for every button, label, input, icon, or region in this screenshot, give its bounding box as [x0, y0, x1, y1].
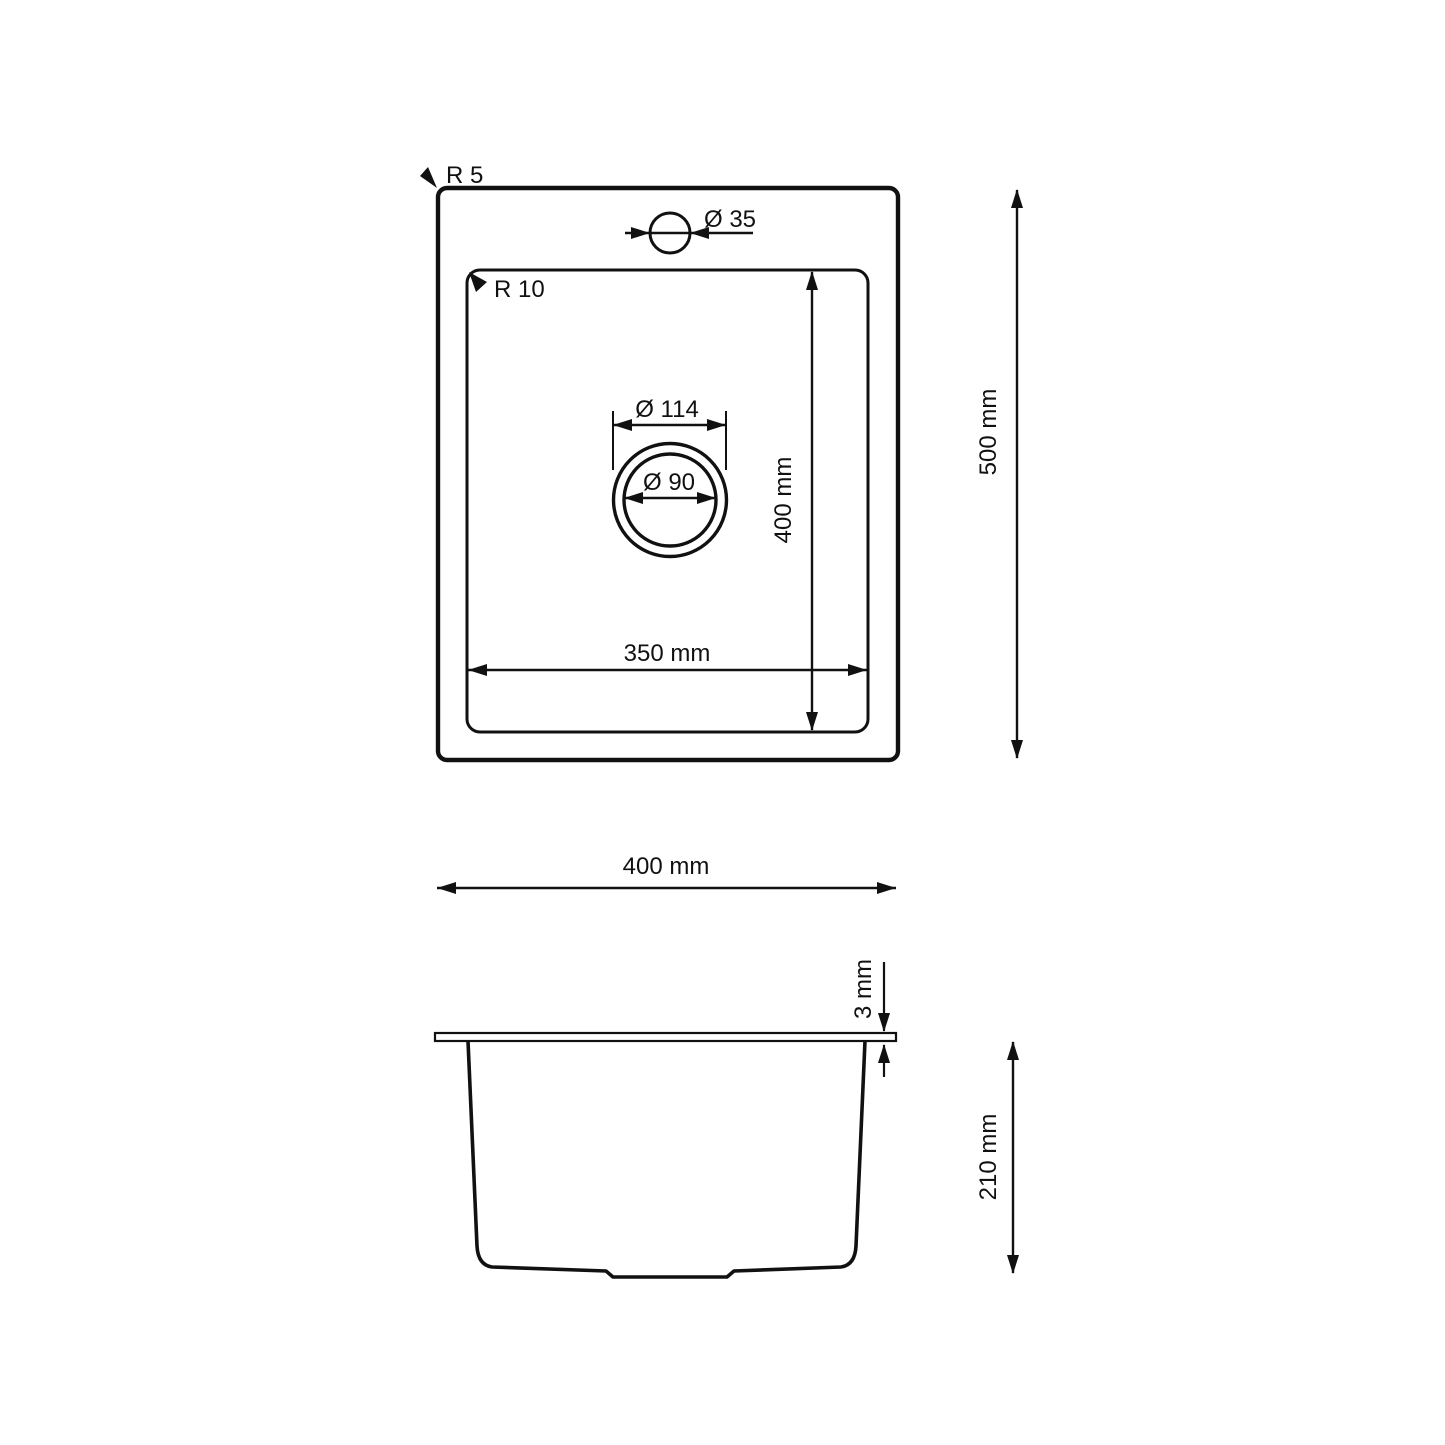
rim-thickness-arrow-down-icon	[878, 1013, 890, 1032]
sink-drawing-canvas: R 5 R 10 Ø 35 Ø 114 Ø 90 350 mm	[0, 0, 1445, 1445]
overall-width-dimension: 400 mm	[437, 853, 896, 894]
overall-width-label: 400 mm	[623, 853, 710, 880]
d90-arrow-right-icon	[697, 492, 716, 504]
drain-outer-diameter-label: Ø 114	[635, 396, 699, 423]
rim-thickness-arrow-up-icon	[878, 1044, 890, 1063]
bowl-height-dimension: 210 mm	[975, 1041, 1019, 1274]
outer-corner-radius-label: R 5	[446, 162, 483, 189]
d114-arrow-right-icon	[707, 419, 726, 431]
overall-width-arrow-left-icon	[437, 882, 456, 894]
d90-arrow-left-icon	[624, 492, 643, 504]
bowl-height-label: 210 mm	[975, 1114, 1002, 1201]
bowl-height-arrow-top-icon	[1007, 1041, 1019, 1060]
overall-depth-label: 500 mm	[975, 389, 1002, 476]
overall-width-arrow-right-icon	[877, 882, 896, 894]
technical-drawing: R 5 R 10 Ø 35 Ø 114 Ø 90 350 mm	[0, 0, 1445, 1445]
drain-diameter-label: Ø 90	[643, 469, 695, 496]
r10-leader-arrow-icon	[469, 272, 487, 292]
bowl-width-arrow-left-icon	[468, 664, 487, 676]
r5-leader-arrow-icon	[420, 167, 437, 188]
bowl-height-arrow-bottom-icon	[1007, 1255, 1019, 1274]
overall-depth-arrow-top-icon	[1011, 189, 1023, 208]
inner-corner-radius-label: R 10	[494, 276, 545, 303]
top-view: R 5 R 10 Ø 35 Ø 114 Ø 90 350 mm	[420, 162, 898, 760]
rim-thickness-label: 3 mm	[850, 959, 877, 1019]
bowl-width-label: 350 mm	[624, 640, 711, 667]
overall-depth-dimension: 500 mm	[975, 189, 1023, 759]
bowl-width-arrow-right-icon	[848, 664, 867, 676]
faucet-dim-arrow-left-icon	[631, 227, 650, 239]
faucet-diameter-label: Ø 35	[704, 206, 756, 233]
side-view-bowl-outline	[468, 1041, 865, 1277]
side-view: 3 mm	[435, 959, 896, 1277]
bowl-depth-label: 400 mm	[770, 457, 797, 544]
overall-depth-arrow-bottom-icon	[1011, 740, 1023, 759]
d114-arrow-left-icon	[613, 419, 632, 431]
side-view-rim	[435, 1033, 896, 1041]
bowl-depth-arrow-top-icon	[806, 271, 818, 290]
bowl-depth-arrow-bottom-icon	[806, 712, 818, 731]
